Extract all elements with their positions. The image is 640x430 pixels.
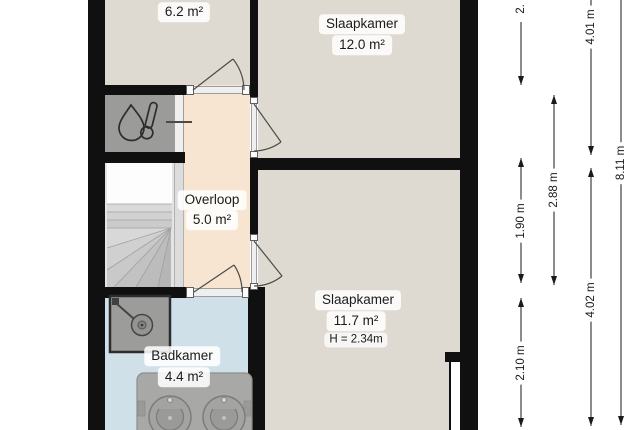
door-swing-top-left-room [193, 59, 244, 90]
floor-plan: 6.2 m² Slaapkamer 12.0 m² Overloop 5.0 m… [0, 0, 640, 430]
bathroom-area-label: 4.4 m² [158, 367, 210, 387]
water-heater-icon [119, 101, 160, 140]
bathroom-name-label: Badkamer [144, 346, 220, 366]
bedroom-top-area-label: 12.0 m² [332, 35, 392, 55]
shower-icon [110, 296, 170, 352]
door-swing-bathroom [194, 265, 242, 292]
dimension-label-top-partial: 2. [515, 0, 527, 18]
dimension-label-1-90: 1.90 m [515, 199, 527, 242]
room-top-left-area-label: 6.2 m² [158, 2, 210, 22]
landing-area-label: 5.0 m² [186, 210, 238, 230]
dimension-arrows [518, 76, 624, 427]
bedroom-top-name-label: Slaapkamer [319, 14, 405, 34]
bedroom-right-name-label: Slaapkamer [315, 290, 401, 310]
door-swing-bedroom-top [254, 104, 281, 151]
dimension-label-2-88: 2.88 m [548, 168, 560, 211]
dimension-label-2-10: 2.10 m [515, 341, 527, 384]
dimension-label-8-11: 8.11 m [615, 142, 627, 184]
dimension-lines [521, 0, 621, 427]
door-swing-bedroom-right [254, 241, 282, 286]
bedroom-right-height-label: H = 2.34m [324, 333, 387, 348]
dimension-label-4-02: 4.02 m [585, 278, 597, 321]
landing-name-label: Overloop [178, 190, 247, 210]
bedroom-right-area-label: 11.7 m² [327, 311, 386, 331]
dimension-label-4-01: 4.01 m [585, 5, 597, 48]
staircase-icon [107, 163, 172, 287]
